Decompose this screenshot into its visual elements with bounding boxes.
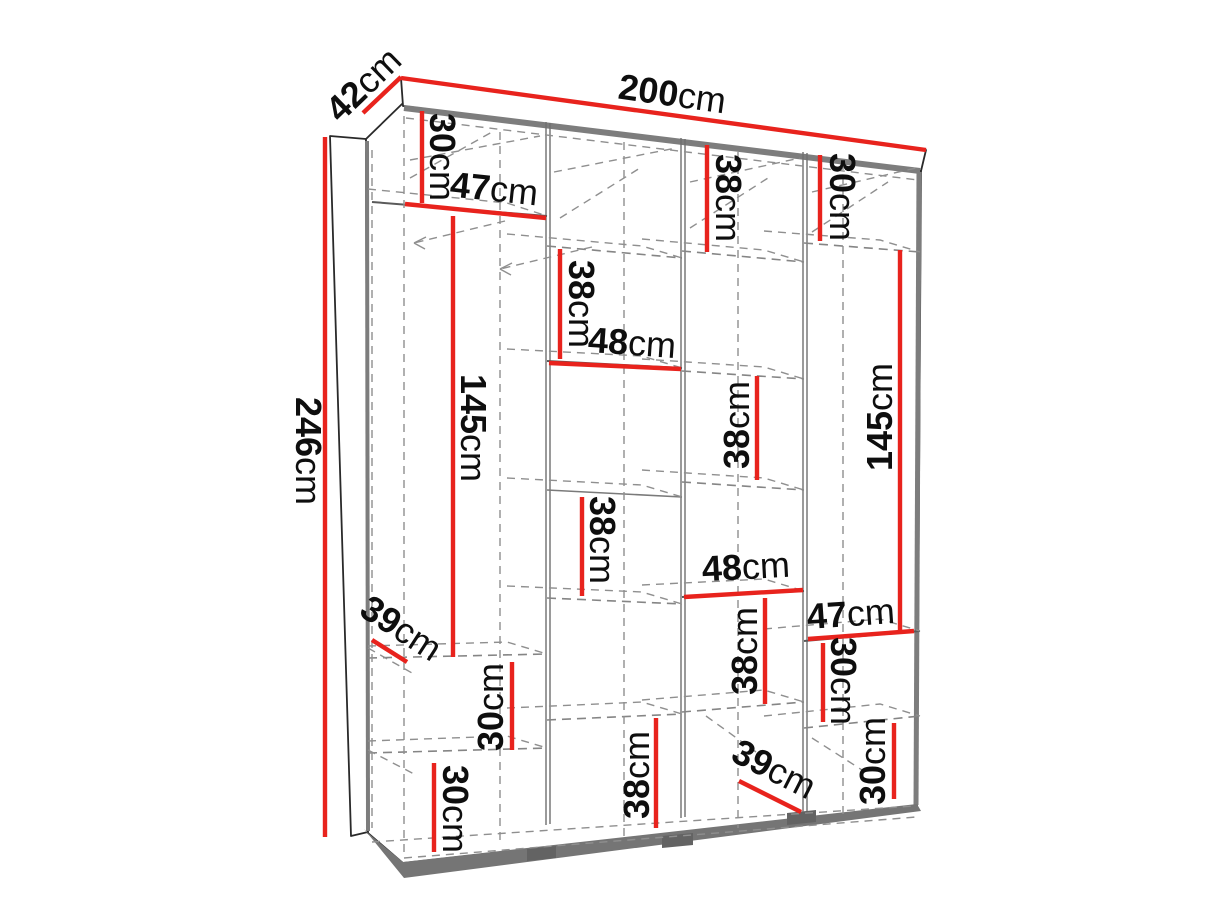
dimension-label-col4-bot-30: 30cm	[852, 717, 893, 805]
dimension-label-col1-mid-30: 30cm	[470, 663, 511, 751]
front-left-edge	[367, 141, 368, 831]
dimension-label-col2-bot-38: 38cm	[616, 731, 657, 819]
dimension-label-col3-low-38: 38cm	[724, 607, 765, 695]
front-right-edge	[916, 172, 919, 805]
dimension-label-col3-mid-38: 38cm	[716, 381, 757, 469]
dimension-label-col2-width-48: 48cm	[587, 319, 678, 366]
dimension-label-col3-width-48: 48cm	[701, 543, 791, 589]
dimension-label-col4-width-47: 47cm	[805, 590, 896, 637]
dimension-label-col1-bot-30: 30cm	[435, 765, 476, 853]
dimension-label-col1-hang-145: 145cm	[453, 374, 494, 482]
side-panel	[330, 136, 368, 836]
dimension-label-col3-top-38: 38cm	[708, 154, 749, 242]
diagram-canvas: 42cm200cm246cm30cm47cm145cm39cm30cm30cm3…	[0, 0, 1214, 910]
dimension-label-height-left: 246cm	[288, 397, 329, 505]
dimension-label-col4-hang-145: 145cm	[859, 363, 900, 471]
dimension-label-col4-mid-30: 30cm	[823, 637, 864, 725]
dimension-label-col4-top-30: 30cm	[822, 153, 863, 241]
wardrobe-diagram: 42cm200cm246cm30cm47cm145cm39cm30cm30cm3…	[0, 0, 1214, 910]
dimension-label-col2-mid-38: 38cm	[582, 496, 623, 584]
